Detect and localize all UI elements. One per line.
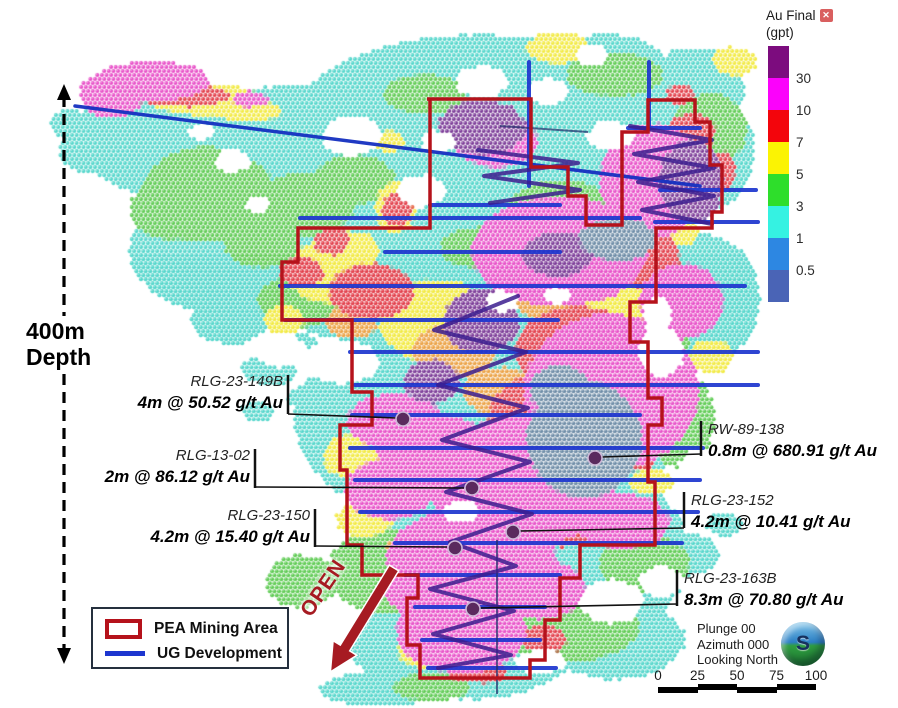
- intercept-grade: 4.2m @ 10.41 g/t Au: [691, 511, 851, 533]
- grade-band-label: 0.5: [796, 263, 815, 278]
- grade-band-label: 7: [796, 135, 804, 150]
- hole-id: RLG-23-150: [150, 505, 310, 526]
- drillhole-callout: RLG-23-149B4m @ 50.52 g/t Au: [138, 371, 283, 414]
- pea-area-label: PEA Mining Area: [154, 620, 278, 638]
- drillhole-callout: RLG-23-163B8.3m @ 70.80 g/t Au: [684, 568, 844, 611]
- scale-bar-segment: [777, 684, 817, 690]
- hole-id: RLG-23-163B: [684, 568, 844, 589]
- scale-tick-label: 0: [654, 668, 662, 683]
- drillhole-marker[interactable]: [588, 451, 602, 465]
- intercept-grade: 2m @ 86.12 g/t Au: [105, 466, 250, 488]
- scale-tick-label: 50: [729, 668, 744, 683]
- grade-band-label: 30: [796, 71, 811, 86]
- intercept-grade: 8.3m @ 70.80 g/t Au: [684, 589, 844, 611]
- drillhole-marker[interactable]: [396, 412, 410, 426]
- depth-value: 400m: [26, 318, 118, 344]
- hole-id: RLG-13-02: [105, 445, 250, 466]
- grade-colorbar: 301075310.5: [768, 46, 789, 302]
- drillhole-callout: RLG-23-1524.2m @ 10.41 g/t Au: [691, 490, 851, 533]
- drillhole-marker[interactable]: [506, 525, 520, 539]
- hole-id: RLG-23-149B: [138, 371, 283, 392]
- long-section-figure: 400m Depth Au Final ✕ (gpt) 301075310.5 …: [0, 0, 898, 708]
- drillhole-marker[interactable]: [448, 541, 462, 555]
- au-grade-legend: Au Final ✕ (gpt) 301075310.5: [766, 8, 894, 40]
- grade-band: 30: [768, 46, 789, 78]
- scale-tick-label: 75: [769, 668, 784, 683]
- legend-unit: (gpt): [766, 25, 894, 40]
- grade-band: 1: [768, 206, 789, 238]
- orientation-ball-icon[interactable]: S: [781, 622, 825, 666]
- grade-band-label: 1: [796, 231, 804, 246]
- intercept-grade: 0.8m @ 680.91 g/t Au: [708, 440, 877, 462]
- ug-development-label: UG Development: [157, 645, 282, 663]
- scale-tick-label: 100: [805, 668, 828, 683]
- orientation-ball-letter: S: [796, 632, 810, 656]
- depth-word: Depth: [26, 344, 118, 370]
- grade-band: [768, 270, 789, 302]
- scale-bar-segment: [737, 687, 777, 693]
- drillhole-callout: RW-89-1380.8m @ 680.91 g/t Au: [708, 419, 877, 462]
- drillhole-callout: RLG-13-022m @ 86.12 g/t Au: [105, 445, 250, 488]
- grade-band-label: 5: [796, 167, 804, 182]
- scale-bar-segment: [658, 687, 698, 693]
- drillhole-marker[interactable]: [465, 481, 479, 495]
- grade-band: 0.5: [768, 238, 789, 270]
- grade-band: 3: [768, 174, 789, 206]
- looking-text: Looking North: [697, 652, 778, 668]
- grade-band: 10: [768, 78, 789, 110]
- grade-band: 7: [768, 110, 789, 142]
- drillhole-marker[interactable]: [466, 602, 480, 616]
- view-orientation-info: Plunge 00 Azimuth 000 Looking North: [697, 621, 778, 668]
- intercept-grade: 4.2m @ 15.40 g/t Au: [150, 526, 310, 548]
- scale-bar: 0255075100: [650, 668, 840, 698]
- grade-band: 5: [768, 142, 789, 174]
- grade-band-label: 10: [796, 103, 811, 118]
- legend-title: Au Final: [766, 8, 816, 23]
- azimuth-text: Azimuth 000: [697, 637, 778, 653]
- close-icon[interactable]: ✕: [820, 9, 833, 22]
- plunge-text: Plunge 00: [697, 621, 778, 637]
- intercept-grade: 4m @ 50.52 g/t Au: [138, 392, 283, 414]
- drillhole-callout: RLG-23-1504.2m @ 15.40 g/t Au: [150, 505, 310, 548]
- depth-scale-label: 400m Depth: [26, 318, 118, 370]
- pea-area-swatch: [105, 619, 142, 639]
- scale-bar-segment: [698, 684, 738, 690]
- scale-tick-label: 25: [690, 668, 705, 683]
- ug-development-swatch: [105, 651, 145, 656]
- hole-id: RLG-23-152: [691, 490, 851, 511]
- grade-band-label: 3: [796, 199, 804, 214]
- map-legend-box: PEA Mining Area UG Development: [91, 607, 289, 669]
- hole-id: RW-89-138: [708, 419, 877, 440]
